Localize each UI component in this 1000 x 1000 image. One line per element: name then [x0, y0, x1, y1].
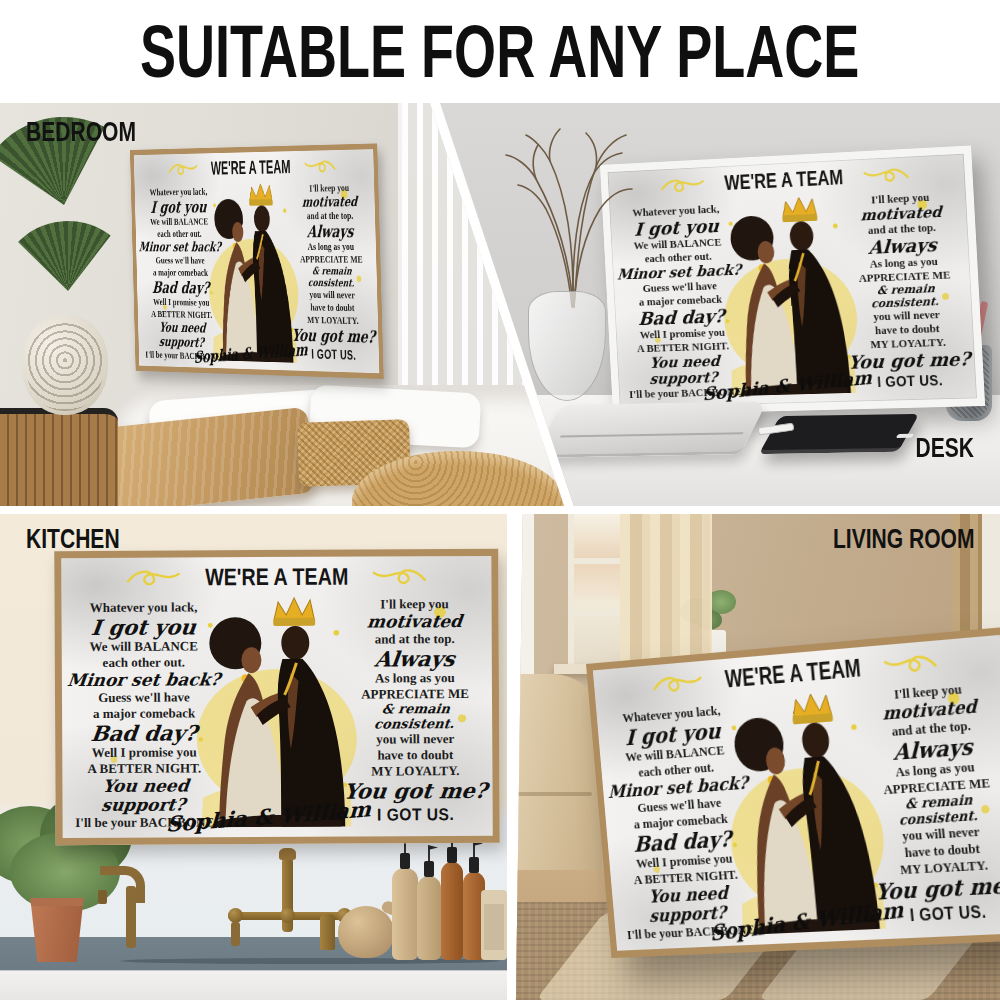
flourish-icon [168, 161, 198, 177]
poster-artwork: WE'RE A TEAM Whatever you lack [61, 556, 492, 838]
poster-line: Guess we'll have [138, 254, 223, 266]
poster-line: We will BALANCE [137, 216, 222, 229]
canister [481, 890, 507, 960]
faucet-joint [228, 908, 243, 923]
faucet-joint [280, 908, 295, 923]
poster-line: Always [337, 647, 492, 671]
poster-line: Guess we'll have [65, 689, 223, 706]
wooden-nightstand [0, 408, 118, 506]
ceramic-jar [338, 906, 394, 958]
textured-vase [22, 315, 108, 415]
flourish-icon [882, 651, 939, 677]
poster-desk: WE'RE A TEAM Whatever you lack [600, 145, 985, 415]
flourish-icon [862, 165, 910, 185]
glass-vase [528, 291, 606, 401]
poster-left-column: Whatever you lack,I got youWe will BALAN… [136, 185, 225, 363]
poster-left-column: Whatever you lack,I got youWe will BALAN… [64, 599, 223, 831]
bottle-cap [469, 857, 479, 873]
poster-line: you will never [288, 288, 377, 302]
scene-living-room: WE'RE A TEAM Whatever you lack [514, 514, 1000, 1000]
flourish-icon [372, 566, 428, 586]
poster-line: Minor set back? [64, 670, 224, 690]
scene-label-kitchen: KITCHEN [26, 524, 120, 555]
poster-line: Bad day? [138, 278, 224, 297]
poster-line: A BETTER NIGHT. [65, 761, 223, 778]
poster-line: MY LOYALTY. [339, 763, 491, 780]
dry-branches [498, 109, 648, 309]
bottle-cap [447, 847, 457, 863]
poster-bedroom: WE'RE A TEAM Whatever you lack [130, 143, 384, 379]
poster-artwork: WE'RE A TEAM Whatever you lack [608, 154, 977, 408]
poster-line: Always [286, 222, 375, 241]
poster-line: APPRECIATE ME [339, 686, 491, 703]
poster-line: & remain consistent. [840, 281, 971, 311]
flourish-icon [304, 158, 337, 174]
poster-line: and at the top. [286, 209, 374, 222]
poster-right-column: I'll keep youmotivatedand at the top.Alw… [285, 181, 378, 364]
poster-left-column: Whatever you lack,I got youWe will BALAN… [599, 701, 764, 944]
poster-line: Bad day? [64, 721, 225, 745]
poster-right-column: I'll keep youmotivatedand at the top.Alw… [853, 677, 1000, 928]
poster-line: Well I promise you [65, 745, 223, 762]
product-mockup-collage: SUITABLE FOR ANY PLACE WE'RE A TEAM [0, 0, 1000, 1000]
poster-line: a major comeback [65, 705, 223, 722]
poster-line: & remain consistent. [337, 702, 492, 732]
scene-label-bedroom: BEDROOM [26, 117, 136, 148]
poster-line: Minor set back? [137, 240, 223, 255]
poster-title: WE'RE A TEAM [210, 156, 290, 179]
scene-kitchen: WE'RE A TEAM Whatever you lack [0, 514, 507, 1000]
poster-line: motivated [337, 612, 491, 632]
amber-bottle [441, 862, 463, 960]
beige-bottle [417, 876, 441, 960]
flourish-icon [651, 671, 704, 696]
poster-line: & remain consistent. [287, 265, 377, 289]
poster-title-row: WE'RE A TEAM [61, 562, 491, 592]
beige-bottle [392, 868, 418, 960]
poster-line: you will never [339, 731, 491, 748]
poster-line: As long as you [339, 670, 491, 687]
poster-title: WE'RE A TEAM [205, 563, 348, 592]
flourish-icon [659, 176, 705, 195]
poster-living-room: WE'RE A TEAM Whatever you lack [586, 627, 1000, 958]
closed-laptop [533, 401, 767, 458]
poster-line: have to doubt [339, 747, 491, 764]
terracotta-pot [28, 898, 86, 962]
brass-knob [320, 914, 335, 950]
poster-line: We will BALANCE [65, 639, 223, 656]
poster-title-row: WE'RE A TEAM [134, 154, 374, 181]
tablet [759, 414, 920, 454]
brass-tap [126, 886, 136, 948]
poster-artwork: WE'RE A TEAM Whatever you lack [134, 149, 380, 373]
page-title: SUITABLE FOR ANY PLACE [140, 15, 859, 89]
poster-line: I got you [136, 197, 222, 216]
poster-line: I'll keep you [338, 596, 490, 613]
poster-line: Whatever you lack, [64, 599, 222, 616]
flourish-icon [125, 568, 181, 588]
faucet-handle [231, 922, 240, 946]
poster-kitchen: WE'RE A TEAM Whatever you lack [54, 549, 500, 845]
poster-right-column: I'll keep youmotivatedand at the top.Alw… [338, 596, 491, 826]
poster-line: and at the top. [339, 631, 491, 648]
bottle-cap [400, 853, 410, 869]
poster-line: motivated [285, 194, 374, 210]
scene-label-desk: DESK [915, 433, 974, 464]
poster-line: As long as you [287, 241, 376, 254]
header: SUITABLE FOR ANY PLACE [0, 0, 1000, 103]
poster-artwork: WE'RE A TEAM Whatever you lack [593, 635, 1000, 951]
scene-label-living-room: LIVING ROOM [832, 524, 974, 555]
poster-line: I got you [63, 615, 224, 639]
poster-right-column: I'll keep youmotivatedand at the top.Alw… [836, 189, 976, 393]
bottle-cap [424, 861, 434, 877]
